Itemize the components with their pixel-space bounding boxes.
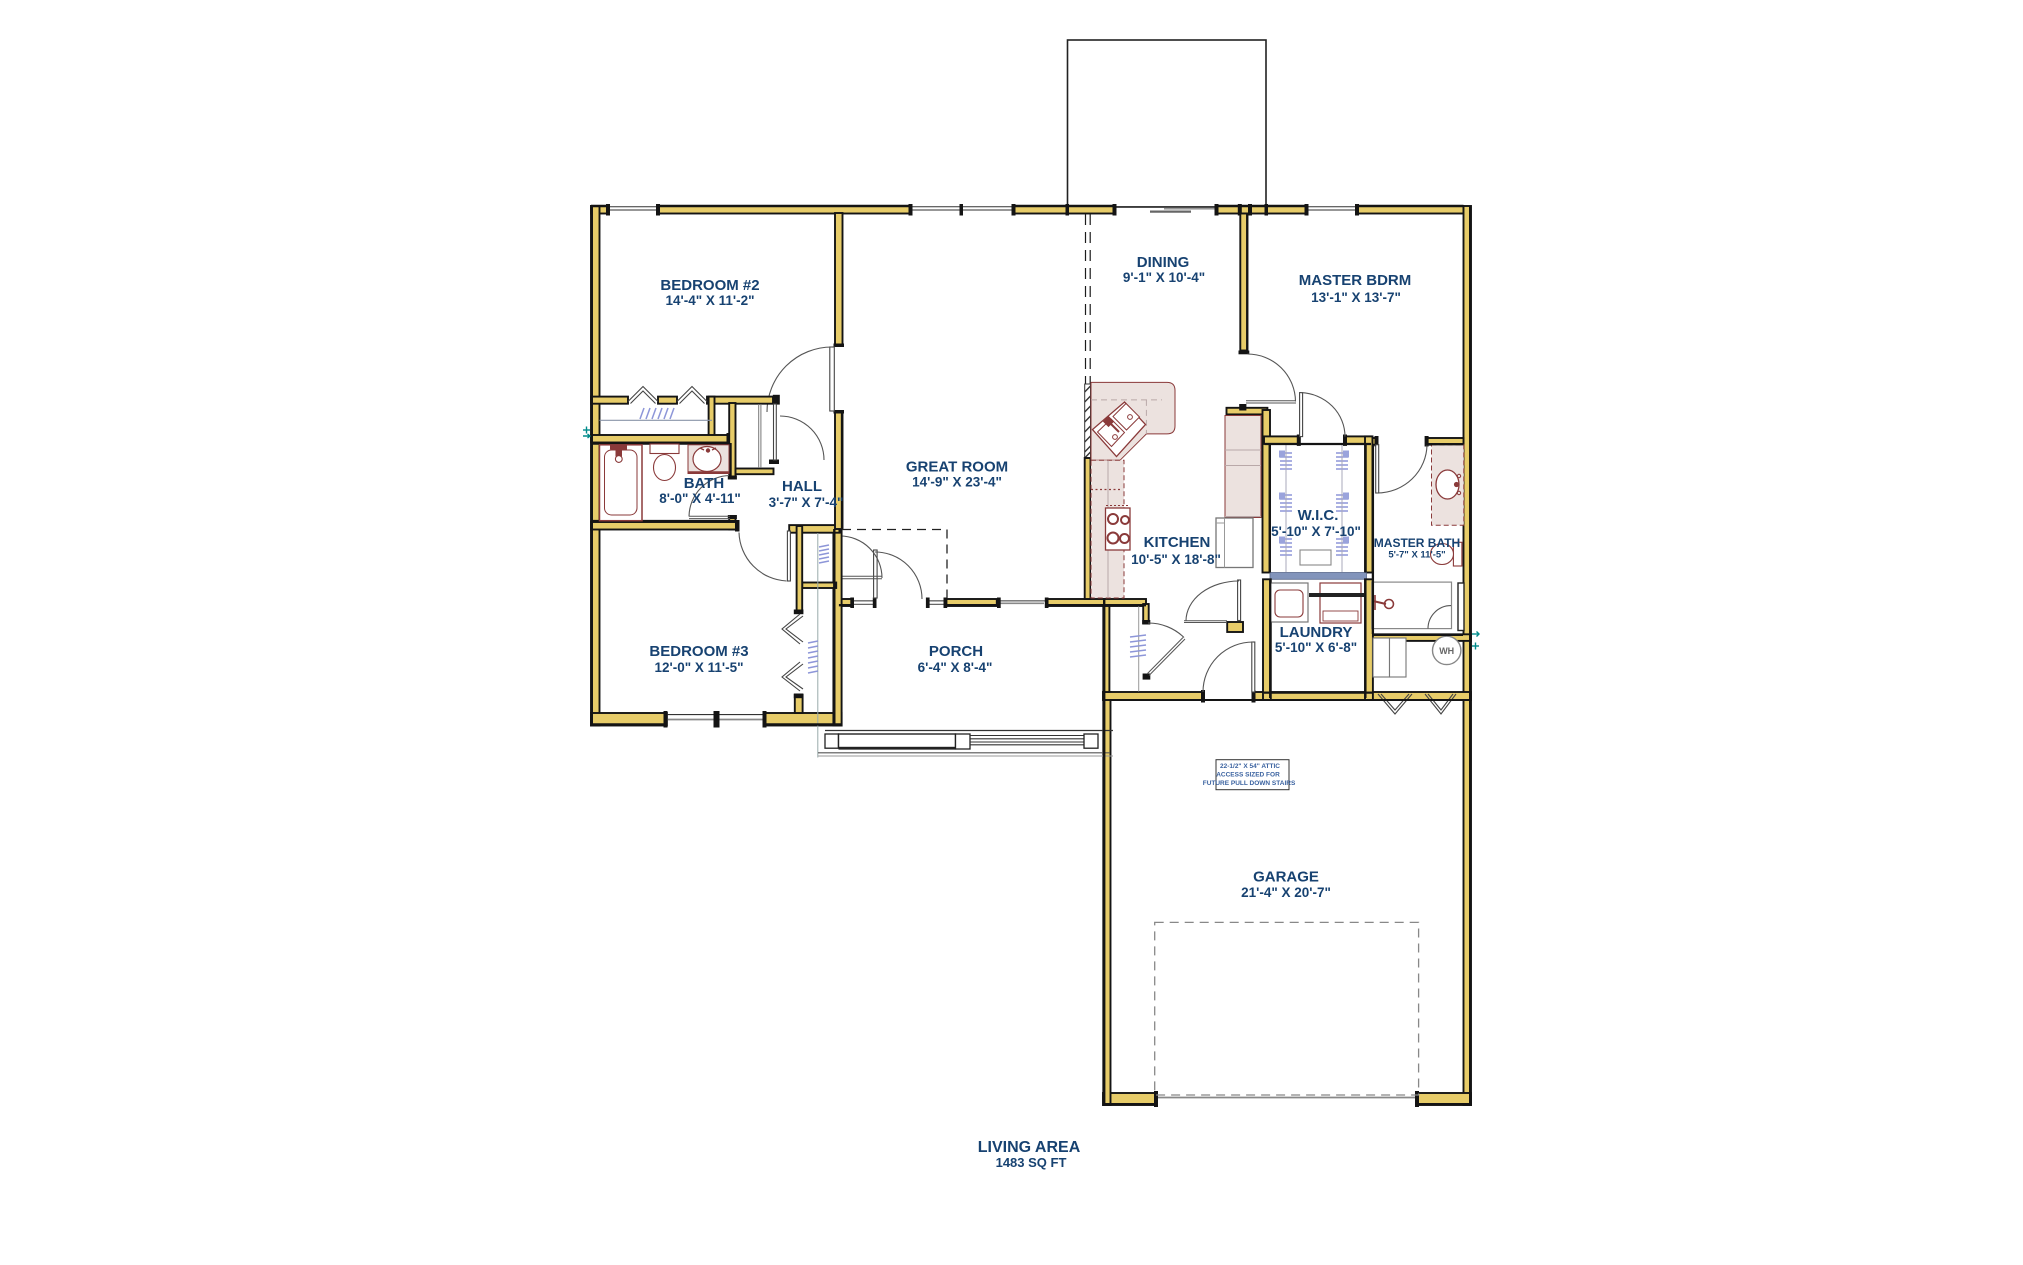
svg-text:GARAGE: GARAGE bbox=[1253, 869, 1319, 886]
svg-text:DINING: DINING bbox=[1137, 254, 1190, 271]
svg-text:22-1/2" X 54" ATTIC: 22-1/2" X 54" ATTIC bbox=[1220, 763, 1280, 770]
svg-text:9'-1" X 10'-4": 9'-1" X 10'-4" bbox=[1123, 270, 1205, 285]
svg-text:BEDROOM #2: BEDROOM #2 bbox=[660, 277, 759, 294]
svg-text:BEDROOM #3: BEDROOM #3 bbox=[649, 643, 748, 660]
svg-text:ACCESS SIZED FOR: ACCESS SIZED FOR bbox=[1216, 772, 1280, 779]
svg-text:8'-0" X 4'-11": 8'-0" X 4'-11" bbox=[659, 491, 741, 506]
svg-text:12'-0" X 11'-5": 12'-0" X 11'-5" bbox=[654, 660, 743, 675]
svg-text:GREAT ROOM: GREAT ROOM bbox=[906, 459, 1008, 476]
svg-text:W.I.C.: W.I.C. bbox=[1298, 507, 1339, 524]
svg-text:5'-10" X 7'-10": 5'-10" X 7'-10" bbox=[1271, 524, 1361, 539]
svg-text:1483 SQ FT: 1483 SQ FT bbox=[996, 1155, 1067, 1170]
svg-text:BATH: BATH bbox=[684, 475, 725, 492]
svg-text:KITCHEN: KITCHEN bbox=[1144, 534, 1211, 551]
svg-text:10'-5" X 18'-8": 10'-5" X 18'-8" bbox=[1131, 552, 1221, 567]
svg-text:PORCH: PORCH bbox=[929, 643, 983, 660]
svg-text:14'-9" X 23'-4": 14'-9" X 23'-4" bbox=[912, 475, 1002, 490]
svg-text:6'-4" X 8'-4": 6'-4" X 8'-4" bbox=[918, 660, 993, 675]
svg-text:5'-7" X 11'-5": 5'-7" X 11'-5" bbox=[1388, 550, 1445, 561]
svg-text:LIVING AREA: LIVING AREA bbox=[978, 1139, 1081, 1156]
svg-text:14'-4" X 11'-2": 14'-4" X 11'-2" bbox=[665, 293, 754, 308]
svg-text:LAUNDRY: LAUNDRY bbox=[1280, 624, 1353, 641]
svg-text:21'-4" X 20'-7": 21'-4" X 20'-7" bbox=[1241, 885, 1331, 900]
svg-text:3'-7" X 7'-4": 3'-7" X 7'-4" bbox=[769, 495, 844, 510]
svg-text:MASTER BDRM: MASTER BDRM bbox=[1299, 272, 1412, 289]
svg-text:FUTURE PULL DOWN STAIRS: FUTURE PULL DOWN STAIRS bbox=[1203, 780, 1296, 787]
svg-text:MASTER BATH: MASTER BATH bbox=[1374, 536, 1460, 550]
svg-text:5'-10" X 6'-8": 5'-10" X 6'-8" bbox=[1275, 640, 1357, 655]
svg-text:13'-1" X 13'-7": 13'-1" X 13'-7" bbox=[1311, 290, 1401, 305]
svg-text:HALL: HALL bbox=[782, 478, 822, 495]
svg-text:WH: WH bbox=[1439, 646, 1454, 656]
